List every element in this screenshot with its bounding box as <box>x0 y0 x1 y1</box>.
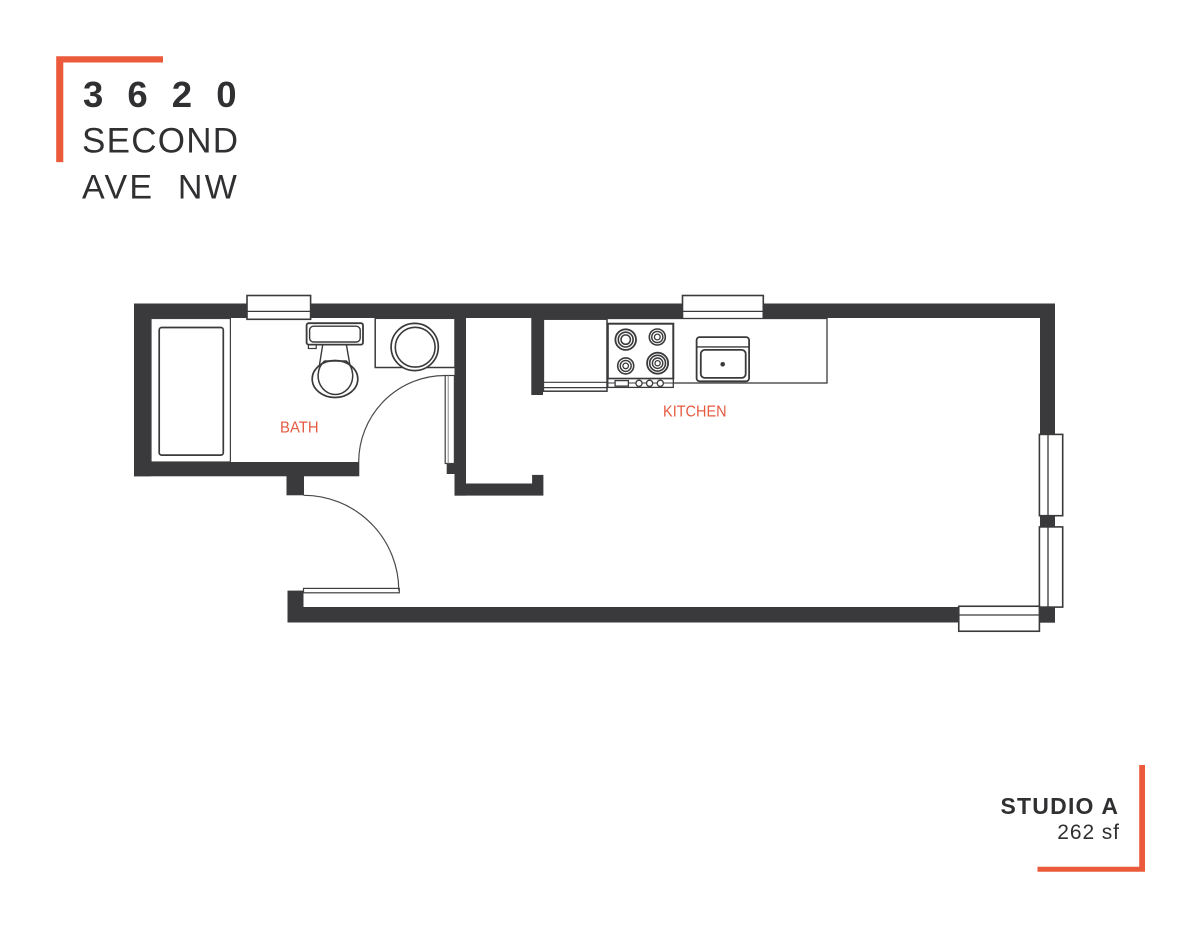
svg-text:262 sf: 262 sf <box>1057 821 1119 844</box>
svg-text:BATH: BATH <box>280 419 319 436</box>
svg-text:KITCHEN: KITCHEN <box>663 403 727 420</box>
svg-text:AVE NW: AVE NW <box>82 169 237 207</box>
